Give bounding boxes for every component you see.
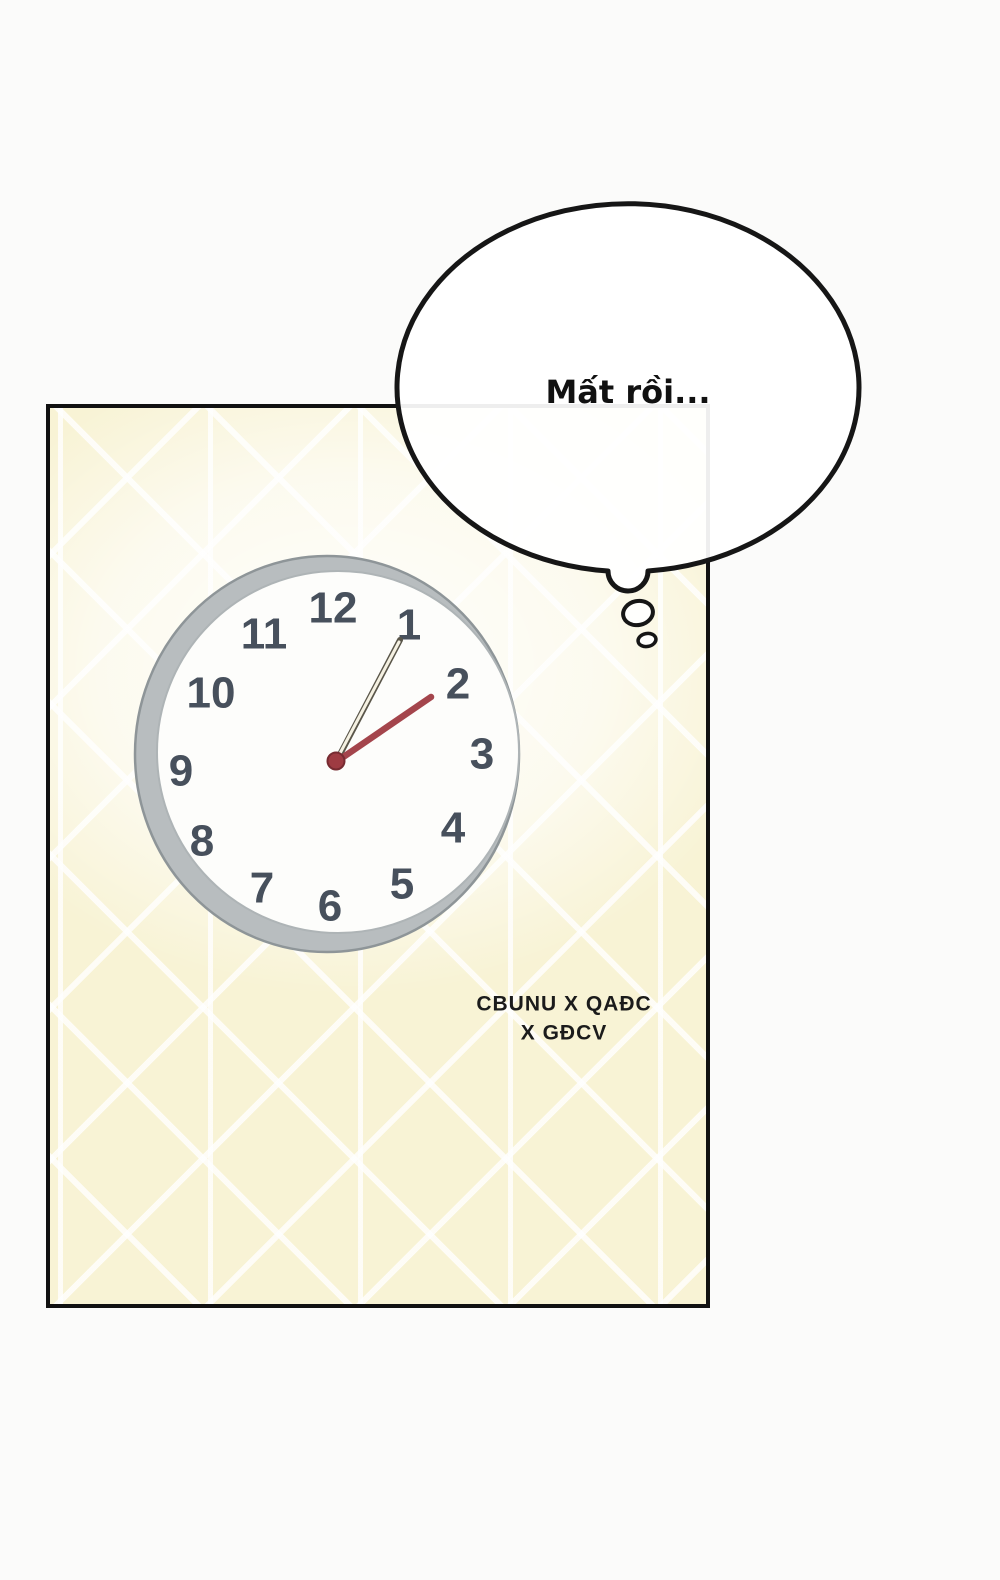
clock-number-6: 6 — [318, 882, 342, 931]
wall-clock: 12 1 2 3 4 5 6 7 8 9 10 11 — [135, 556, 519, 952]
clock-number-8: 8 — [190, 817, 214, 866]
thought-bubble: Mất rồi... — [397, 204, 859, 648]
clock-center-cap — [328, 753, 345, 770]
thought-dot-large — [621, 598, 655, 628]
clock-number-2: 2 — [446, 660, 470, 709]
credit-watermark: CBUNU X QAĐC X GĐCV — [476, 993, 651, 1045]
clock-number-10: 10 — [187, 669, 236, 718]
clock-number-7: 7 — [250, 864, 274, 913]
thought-bubble-text: Mất rồi... — [545, 373, 710, 411]
credit-line-1: CBUNU X QAĐC — [476, 993, 651, 1016]
credit-line-2: X GĐCV — [521, 1022, 608, 1045]
clock-number-11: 11 — [241, 610, 288, 659]
thought-dot-small — [637, 632, 657, 648]
clock-number-4: 4 — [441, 804, 466, 853]
comic-page: 12 1 2 3 4 5 6 7 8 9 10 11 — [0, 0, 1000, 1580]
clock-number-3: 3 — [470, 730, 494, 779]
clock-number-12: 12 — [309, 584, 358, 633]
clock-number-5: 5 — [390, 860, 414, 909]
panel-artwork: 12 1 2 3 4 5 6 7 8 9 10 11 — [0, 0, 1000, 1580]
clock-number-9: 9 — [169, 747, 193, 796]
